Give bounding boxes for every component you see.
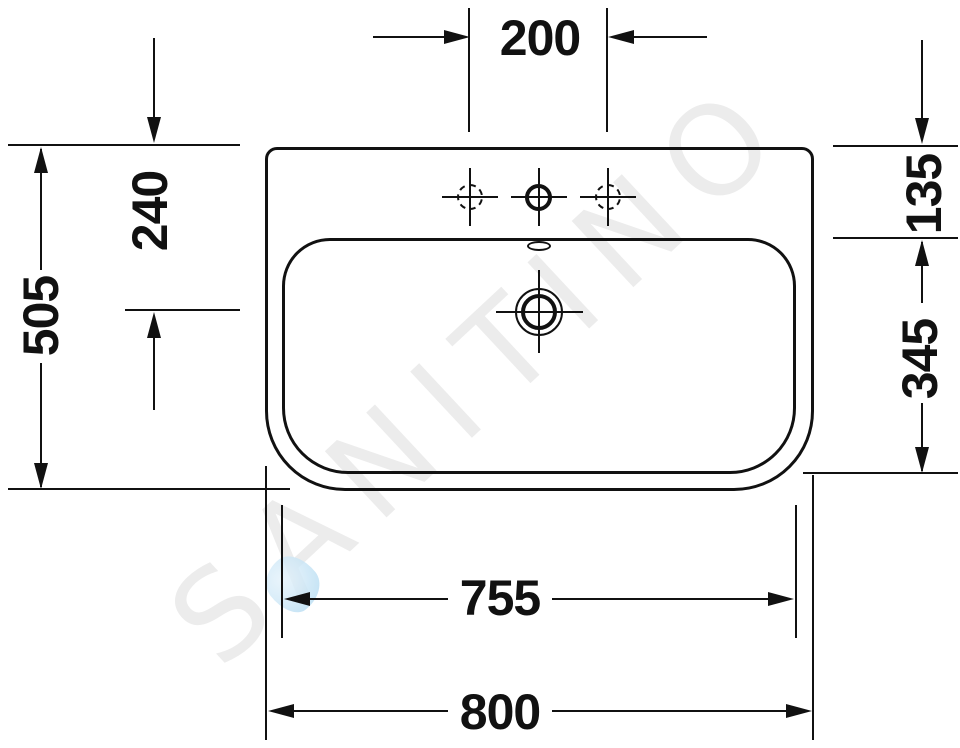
drain-crosshair-v: [538, 270, 540, 353]
faucet-right-crosshair-v: [607, 168, 609, 226]
overflow-slot: [527, 241, 551, 251]
faucet-center-crosshair-v: [538, 168, 540, 226]
arrowhead-right: [444, 30, 470, 44]
extension-line: [795, 505, 797, 638]
dim-345-label: 345: [895, 299, 945, 419]
arrowhead-up: [34, 147, 48, 173]
dim-755-label: 755: [440, 573, 560, 623]
arrowhead-left: [284, 592, 310, 606]
dim-505-label: 505: [16, 256, 66, 376]
arrowhead-down: [915, 447, 929, 473]
extension-line: [8, 488, 290, 490]
extension-line: [125, 309, 240, 311]
extension-line: [803, 472, 958, 474]
extension-line: [281, 505, 283, 638]
extension-line: [606, 8, 608, 132]
extension-line: [468, 8, 470, 132]
dimension-line: [153, 336, 155, 410]
arrowhead-left: [608, 30, 634, 44]
dimension-line: [552, 598, 770, 600]
dim-800-label: 800: [440, 687, 560, 737]
extension-line: [8, 144, 240, 146]
arrowhead-down: [147, 117, 161, 143]
dim-135-label: 135: [899, 134, 949, 254]
faucet-left-crosshair-v: [469, 168, 471, 226]
dimension-line: [552, 710, 788, 712]
dim-200-label: 200: [480, 13, 600, 63]
dimension-line: [308, 598, 448, 600]
dim-240-label: 240: [125, 151, 175, 271]
dimension-line: [292, 710, 448, 712]
dimension-line: [634, 36, 707, 38]
arrowhead-up: [147, 312, 161, 338]
arrowhead-left: [268, 704, 294, 718]
drawing-canvas: SANITINO 200 505 240 135 345: [0, 0, 960, 748]
extension-line: [265, 466, 267, 740]
extension-line: [812, 475, 814, 740]
arrowhead-down: [34, 463, 48, 489]
dimension-line: [373, 36, 446, 38]
arrowhead-right: [768, 592, 794, 606]
arrowhead-right: [786, 704, 812, 718]
